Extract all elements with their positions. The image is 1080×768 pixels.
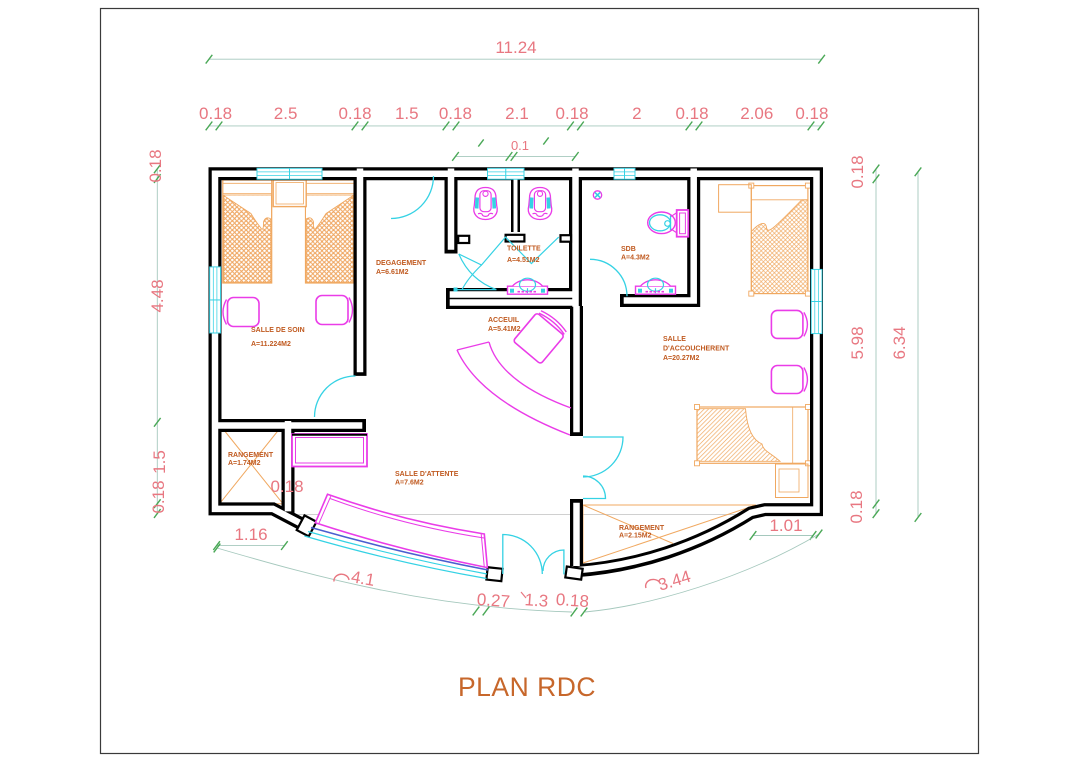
svg-text:11.24: 11.24 (495, 38, 536, 57)
svg-text:1.01: 1.01 (769, 516, 802, 535)
svg-text:A=2.15M2: A=2.15M2 (619, 533, 652, 540)
svg-text:1.3: 1.3 (524, 590, 549, 611)
svg-text:2.1: 2.1 (505, 104, 529, 123)
svg-text:2.5: 2.5 (274, 104, 298, 123)
svg-text:2: 2 (632, 104, 641, 123)
svg-text:A=4.3M2: A=4.3M2 (621, 255, 650, 262)
svg-text:DEGAGEMENT: DEGAGEMENT (376, 260, 427, 267)
svg-text:A=7.6M2: A=7.6M2 (395, 480, 424, 487)
svg-text:PLAN RDC: PLAN RDC (458, 672, 596, 702)
svg-text:D'ACCOUCHERENT: D'ACCOUCHERENT (663, 346, 730, 353)
svg-text:0.18: 0.18 (439, 104, 472, 123)
svg-text:1.5: 1.5 (150, 450, 169, 474)
svg-text:1.16: 1.16 (234, 525, 267, 544)
svg-text:1.5: 1.5 (395, 104, 419, 123)
svg-text:0.18: 0.18 (146, 149, 165, 182)
svg-text:0.18: 0.18 (556, 104, 589, 123)
svg-text:0.18: 0.18 (848, 155, 867, 188)
svg-text:RANGEMENT: RANGEMENT (228, 452, 274, 459)
svg-text:0.18: 0.18 (149, 480, 168, 513)
svg-text:0.18: 0.18 (795, 104, 828, 123)
svg-text:4.1: 4.1 (350, 567, 377, 590)
svg-text:SDB: SDB (621, 246, 636, 253)
svg-text:TOILETTE: TOILETTE (507, 246, 541, 253)
svg-text:0.18: 0.18 (555, 590, 589, 611)
svg-text:5.98: 5.98 (848, 326, 867, 359)
svg-text:0.1: 0.1 (511, 138, 529, 153)
svg-text:A=5.41M2: A=5.41M2 (488, 326, 521, 333)
svg-text:A=20.27M2: A=20.27M2 (663, 355, 699, 362)
svg-text:0.27: 0.27 (476, 590, 510, 611)
svg-text:0.18: 0.18 (338, 104, 371, 123)
svg-text:4.48: 4.48 (148, 279, 167, 312)
svg-text:SALLE DE SOIN: SALLE DE SOIN (251, 327, 305, 334)
svg-text:0.18: 0.18 (199, 104, 232, 123)
svg-text:0.18: 0.18 (847, 490, 866, 523)
svg-text:A=11.224M2: A=11.224M2 (251, 341, 291, 348)
svg-text:A=6.61M2: A=6.61M2 (376, 269, 409, 276)
svg-text:0.18: 0.18 (675, 104, 708, 123)
svg-text:A=1.74M2: A=1.74M2 (228, 460, 261, 467)
svg-text:SALLE: SALLE (663, 336, 686, 343)
svg-text:6.34: 6.34 (890, 326, 909, 359)
svg-text:RANGEMENT: RANGEMENT (619, 525, 665, 532)
svg-text:SALLE D'ATTENTE: SALLE D'ATTENTE (395, 471, 459, 478)
svg-text:0.18: 0.18 (270, 477, 303, 496)
svg-text:A=4.51M2: A=4.51M2 (507, 257, 540, 264)
svg-text:2.06: 2.06 (740, 104, 773, 123)
svg-text:ACCEUIL: ACCEUIL (488, 317, 520, 324)
